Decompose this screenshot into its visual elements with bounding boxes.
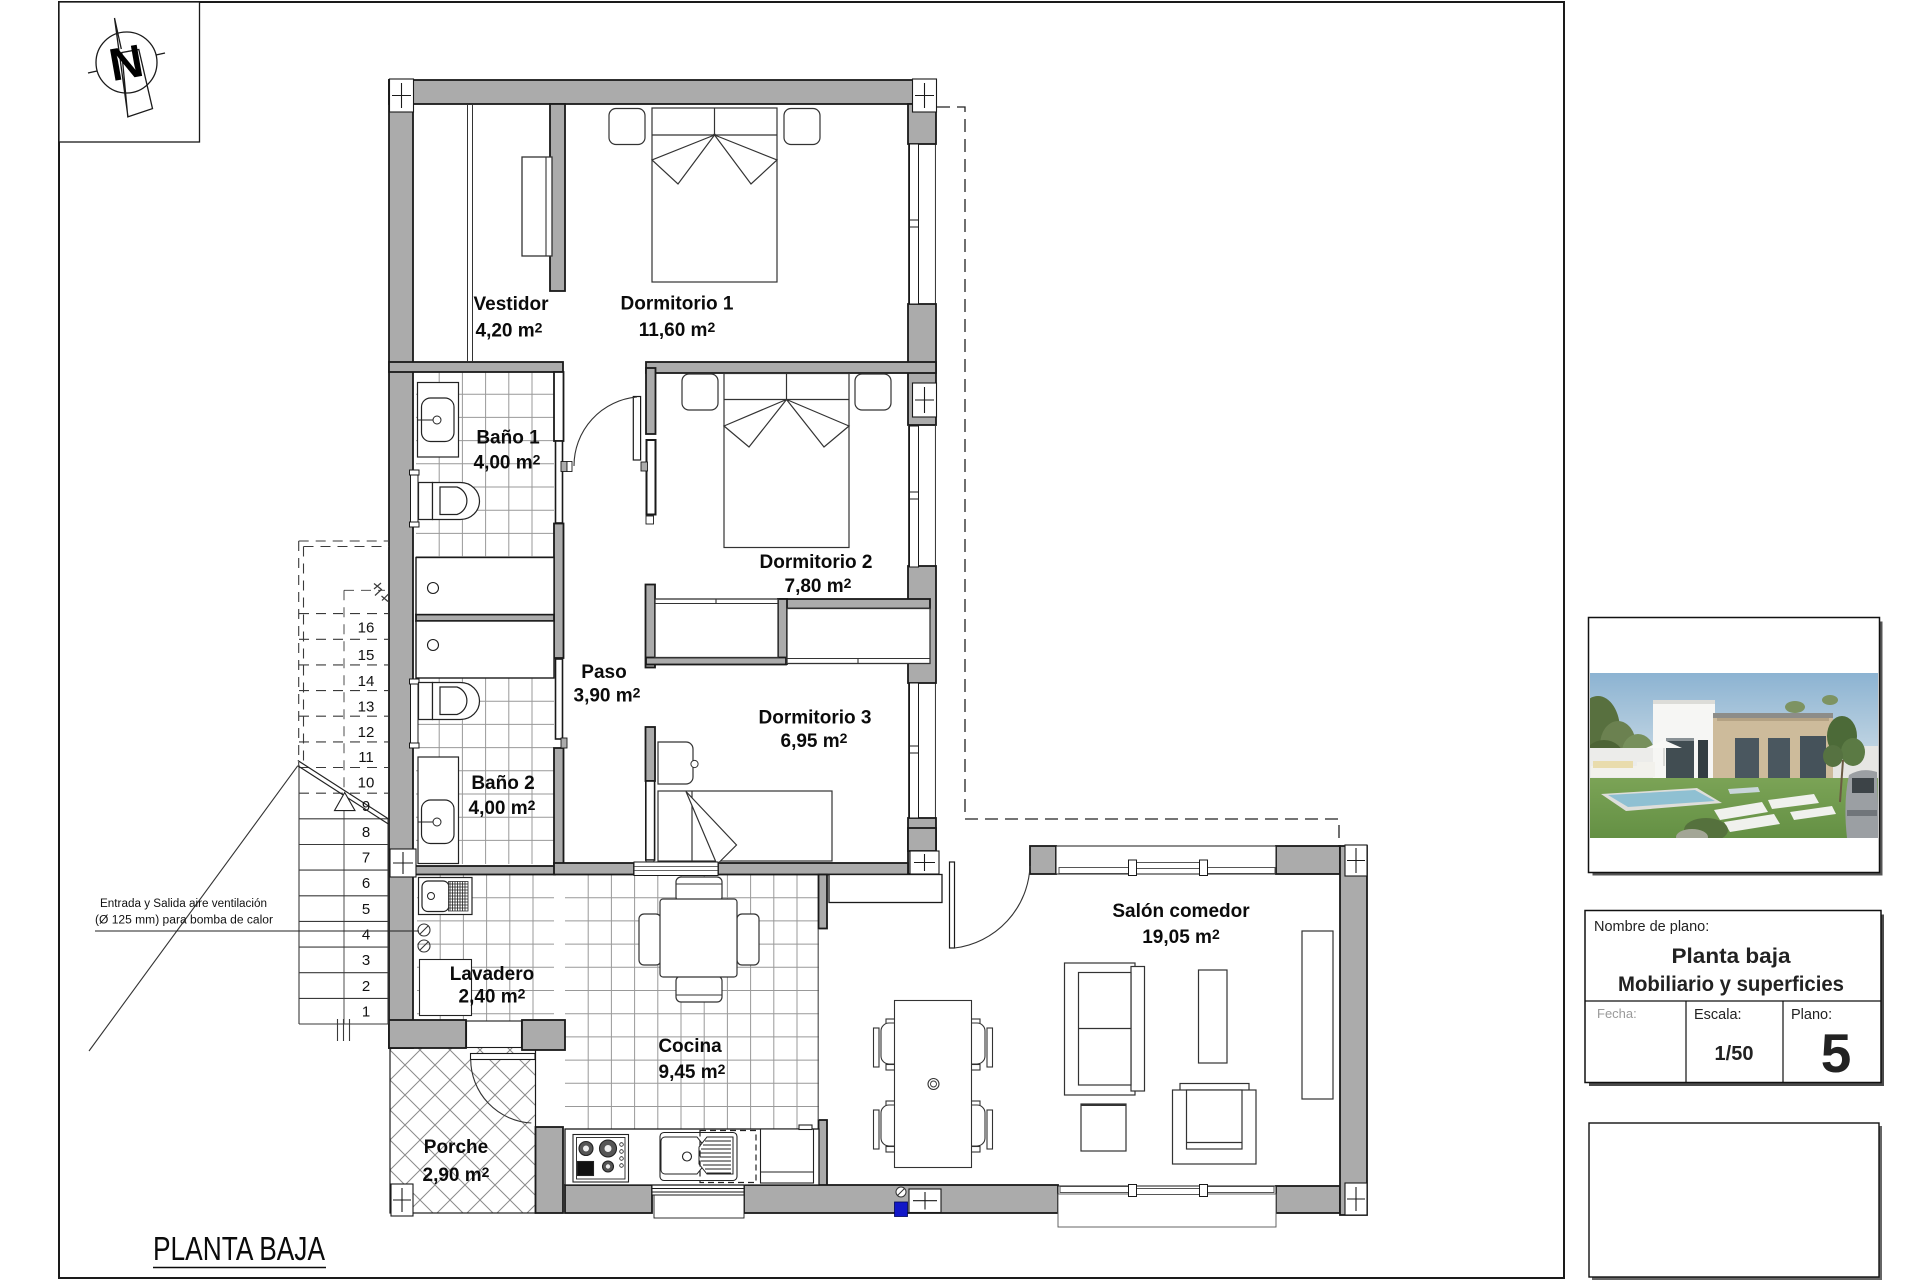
svg-text:Baño 2: Baño 2 [471,773,534,794]
svg-text:5: 5 [362,901,370,918]
svg-text:2,90 m2: 2,90 m2 [423,1164,490,1186]
svg-text:Baño 1: Baño 1 [476,428,540,449]
svg-text:Paso: Paso [581,662,626,683]
svg-text:6,95 m2: 6,95 m2 [781,730,848,752]
svg-text:4,20 m2: 4,20 m2 [476,320,543,342]
svg-text:6: 6 [362,875,370,892]
svg-text:PLANTA BAJA: PLANTA BAJA [153,1230,325,1267]
svg-text:2,40 m2: 2,40 m2 [459,986,526,1008]
svg-text:14: 14 [358,673,375,690]
svg-text:Escala:: Escala: [1694,1007,1742,1023]
svg-text:2: 2 [362,978,370,995]
svg-text:Dormitorio 2: Dormitorio 2 [760,552,873,573]
svg-text:7: 7 [362,850,370,867]
svg-text:Salón comedor: Salón comedor [1112,901,1250,922]
svg-text:4,00 m2: 4,00 m2 [469,797,536,819]
svg-text:11: 11 [358,749,374,766]
svg-text:5: 5 [1821,1022,1852,1084]
svg-text:Fecha:: Fecha: [1597,1006,1637,1021]
svg-text:16: 16 [358,620,375,637]
svg-text:15: 15 [358,647,375,664]
svg-text:9,45 m2: 9,45 m2 [659,1061,726,1083]
svg-text:Entrada y Salida aire ventilac: Entrada y Salida aire ventilación [100,898,267,910]
svg-text:8: 8 [362,824,370,841]
svg-text:13: 13 [358,699,375,716]
svg-text:Dormitorio 1: Dormitorio 1 [621,294,734,315]
svg-text:11,60 m2: 11,60 m2 [639,319,716,341]
svg-text:4: 4 [362,927,370,944]
svg-text:Porche: Porche [424,1137,488,1158]
svg-text:7,80 m2: 7,80 m2 [785,575,852,597]
svg-text:19,05 m2: 19,05 m2 [1142,926,1220,948]
svg-text:3,90 m2: 3,90 m2 [574,685,641,707]
svg-text:Mobiliario y superficies: Mobiliario y superficies [1618,972,1844,996]
svg-text:Plano:: Plano: [1791,1007,1832,1023]
svg-text:1/50: 1/50 [1715,1043,1754,1065]
svg-text:Planta baja: Planta baja [1672,944,1792,968]
svg-text:Vestidor: Vestidor [474,294,550,315]
svg-text:3: 3 [362,952,370,969]
svg-text:1: 1 [362,1004,370,1021]
svg-text:4,00 m2: 4,00 m2 [474,452,541,474]
svg-text:Lavadero: Lavadero [450,964,534,985]
svg-text:10: 10 [358,775,375,792]
svg-text:(Ø 125 mm) para bomba de calor: (Ø 125 mm) para bomba de calor [95,915,273,927]
svg-text:9: 9 [362,798,370,815]
svg-text:Dormitorio 3: Dormitorio 3 [759,708,872,729]
svg-text:12: 12 [358,724,375,741]
svg-text:Cocina: Cocina [658,1036,722,1057]
svg-text:Nombre de plano:: Nombre de plano: [1594,919,1709,935]
